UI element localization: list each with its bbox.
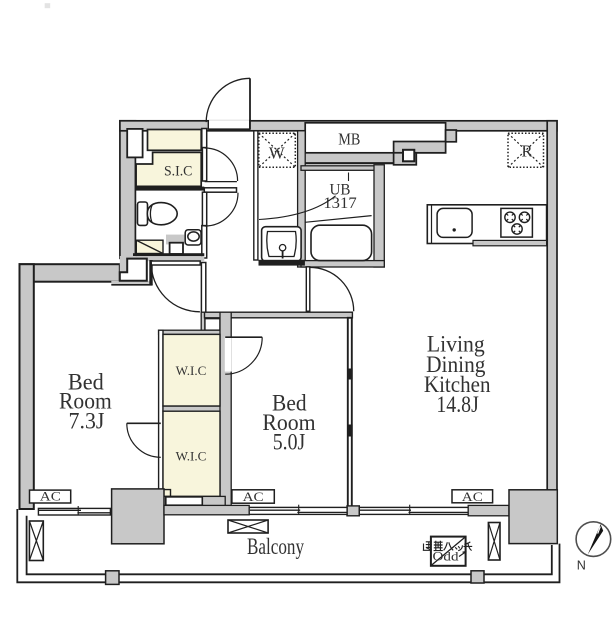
svg-text:N: N	[577, 559, 586, 573]
svg-text:S.I.C: S.I.C	[164, 163, 193, 179]
svg-text:AC: AC	[40, 490, 61, 504]
svg-text:MB: MB	[338, 130, 360, 149]
svg-text:14.8J: 14.8J	[436, 392, 478, 417]
svg-text:R: R	[521, 142, 532, 161]
svg-text:5.0J: 5.0J	[273, 429, 306, 454]
svg-text:Odd: Odd	[433, 549, 460, 564]
svg-text:Balcony: Balcony	[247, 534, 304, 559]
svg-text:W.I.C: W.I.C	[176, 364, 207, 378]
svg-text:W.I.C: W.I.C	[176, 449, 207, 463]
svg-text:7.3J: 7.3J	[69, 409, 105, 434]
svg-text:AC: AC	[243, 490, 264, 504]
svg-text:W: W	[269, 143, 285, 162]
svg-text:1317: 1317	[323, 195, 357, 212]
svg-text:AC: AC	[462, 490, 483, 504]
